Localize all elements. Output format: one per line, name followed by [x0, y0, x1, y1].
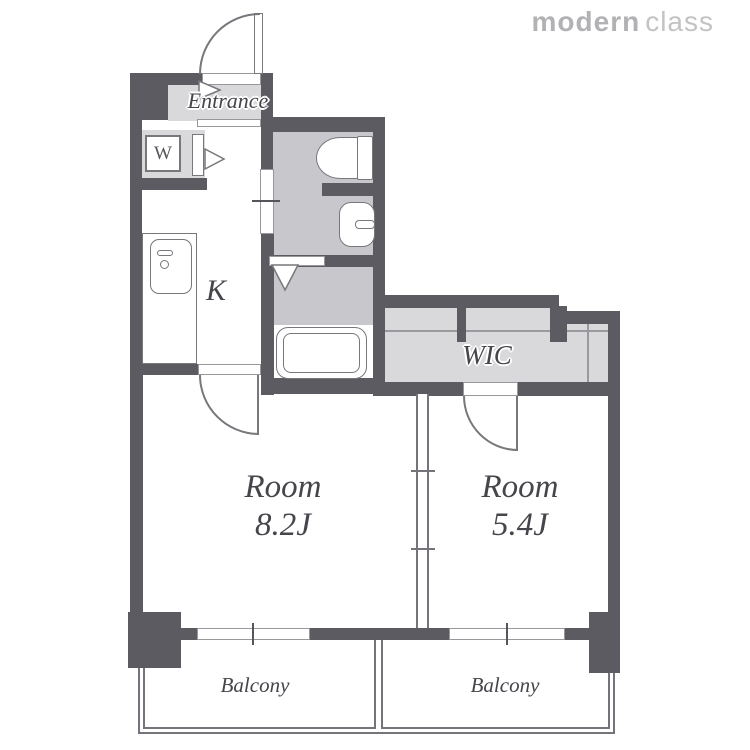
- brand-logo-bold: modern: [532, 6, 641, 37]
- wic-label: WIC: [427, 340, 547, 371]
- entrance-label: Entrance: [158, 88, 298, 114]
- wic-door-opening: [463, 382, 518, 396]
- balcony-divider: [374, 640, 383, 729]
- entrance-door-arc: [199, 13, 260, 74]
- kitchen-sink: [150, 239, 192, 294]
- room-1-name: Room: [183, 468, 383, 506]
- washer-label: W: [154, 143, 172, 165]
- partition-tick: [411, 548, 435, 550]
- wall: [261, 378, 385, 394]
- toilet-tank-icon: [357, 136, 373, 180]
- wall: [261, 132, 273, 170]
- balcony-left-label: Balcony: [175, 673, 335, 698]
- wall: [565, 628, 591, 640]
- wic-hanger-rod-line: [383, 330, 608, 332]
- entrance-step-edge: [197, 119, 261, 127]
- wall: [130, 375, 143, 612]
- room-2-name: Room: [420, 468, 620, 506]
- basin-faucet: [355, 220, 375, 229]
- toilet-bowl-icon: [316, 137, 362, 179]
- wall: [130, 178, 207, 190]
- bathtub-inner: [283, 333, 360, 373]
- room-2-label: Room 5.4J: [420, 468, 620, 544]
- washing-machine: W: [145, 135, 181, 172]
- balcony-right-label: Balcony: [425, 673, 585, 698]
- wall: [168, 73, 202, 85]
- wic-stub-wall: [457, 295, 466, 342]
- pillar-right: [589, 612, 620, 673]
- room-2-size: 5.4J: [420, 506, 620, 544]
- room-1-label: Room 8.2J: [183, 468, 383, 544]
- wall: [608, 311, 620, 612]
- window-right-tick: [506, 623, 508, 645]
- window-left-tick: [252, 623, 254, 645]
- wall: [261, 117, 385, 132]
- room-1-size: 8.2J: [183, 506, 383, 544]
- wall: [181, 628, 198, 640]
- hall-opening-tick: [252, 200, 280, 202]
- wic-divider-line: [587, 322, 589, 385]
- wall: [130, 364, 198, 375]
- floor-plan: W Entrance K WIC Room 8.2J Room 5.4J Bal…: [0, 0, 750, 750]
- wall: [130, 120, 142, 364]
- washer-door-leaf: [192, 134, 204, 176]
- kitchen-faucet-knob: [160, 260, 169, 269]
- kitchen-label: K: [195, 274, 237, 308]
- kitchen-door-opening: [198, 364, 261, 375]
- kitchen-faucet: [157, 250, 173, 256]
- brand-logo: modernclass: [532, 6, 714, 38]
- wall: [373, 295, 559, 308]
- washer-fold-door-icon: [204, 148, 226, 170]
- brand-logo-light: class: [645, 6, 714, 37]
- wic-door-arc: [463, 396, 518, 451]
- kitchen-door-arc: [199, 375, 259, 435]
- bath-fold-door-icon: [270, 263, 300, 292]
- pillar-left: [128, 612, 181, 668]
- wall: [310, 628, 450, 640]
